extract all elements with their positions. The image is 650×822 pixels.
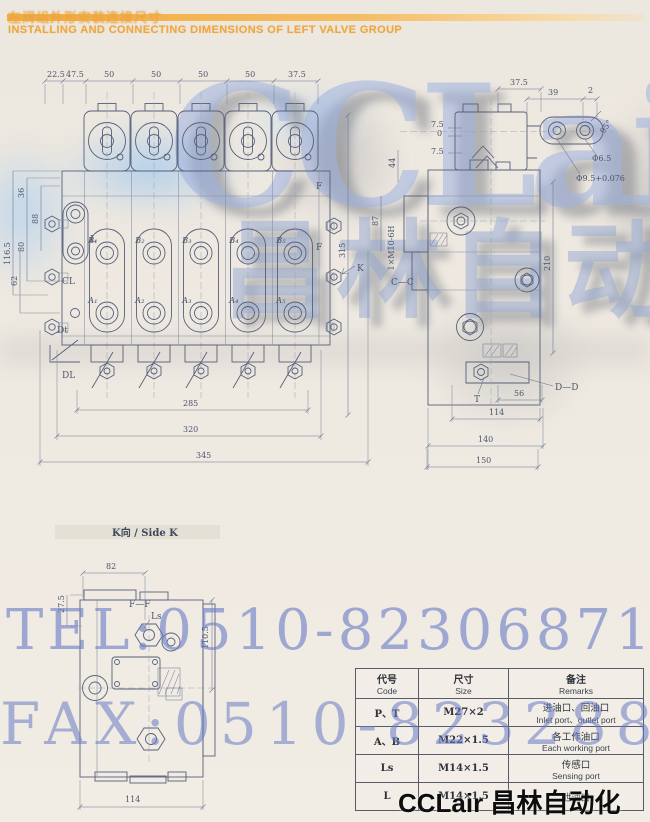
svg-text:88: 88 [31,214,40,224]
port-label: A₅ [275,296,286,306]
svg-text:345: 345 [196,451,211,460]
brand-footer: CCLair 昌林自动化 [398,783,620,820]
svg-text:7.5: 7.5 [431,120,444,129]
side-k-view: K向 / Side K [55,525,220,810]
view-arrow-k: K [357,264,364,274]
port-label: A₄ [228,296,239,306]
svg-text:87: 87 [371,216,380,226]
port-label: B₃ [181,236,192,246]
svg-text:116.5: 116.5 [3,242,12,265]
svg-text:114: 114 [489,408,504,417]
section-view: 95° Φ6.5 Φ9.5+0.076 1×M10-6H C—C D—D T 3… [371,78,625,470]
port-label: A₁ [87,296,98,306]
fax-watermark: FAX:0510-82328871 [0,690,650,758]
svg-text:150: 150 [476,456,491,465]
front-left-dims: 36 88 80 116.5 62 [3,171,60,313]
diameter-label: Φ6.5 [592,154,611,163]
port-label-f: F [316,243,322,253]
front-height-dim: 315 [338,113,351,418]
svg-text:39: 39 [548,88,558,97]
svg-text:114: 114 [125,795,140,804]
port-label: B₄ [228,236,239,246]
section-label-dd: D—D [555,383,578,393]
port-label: B₅ [275,236,286,246]
port-label: A₂ [134,296,145,306]
section-dims: 37.5 39 2 7.5 0 7.5 44 87 210 [371,78,600,470]
port-label-dt: Dt [57,326,68,336]
port-label-dl: DL [62,371,75,381]
svg-text:22.5: 22.5 [47,70,65,79]
thread-label: 1×M10-6H [387,226,396,271]
svg-text:47.5: 47.5 [66,70,84,79]
svg-text:285: 285 [183,399,198,408]
svg-text:44: 44 [388,158,397,168]
hatch [430,233,517,357]
side-k-title: K向 / Side K [112,526,178,539]
cell-size: M14×1.5 [419,755,509,783]
catalog-page: CCLair 昌林自动化 左阀组外形安装连接尺寸 INSTALLING AND … [0,0,650,822]
svg-text:37.5: 37.5 [288,70,306,79]
section-label-cc: C—C [391,278,414,288]
port-label: A₃ [181,296,192,306]
diameter-label: Φ9.5+0.076 [576,174,625,183]
tel-watermark: TEL:0510-82306871 [6,598,650,663]
svg-text:80: 80 [17,242,26,252]
port-label-t: T [474,395,480,405]
cell-code: Ls [356,755,419,783]
front-top-dims: 22.5 47.5 50 50 50 50 37.5 [43,70,321,104]
port-label: B₂ [134,236,145,246]
svg-text:140: 140 [478,435,493,444]
port-label-cl: CL [62,277,75,287]
angle-label: 95° [598,118,614,135]
svg-text:36: 36 [17,188,26,198]
svg-text:37.5: 37.5 [510,78,528,87]
svg-text:50: 50 [245,70,255,79]
svg-text:50: 50 [198,70,208,79]
svg-text:315: 315 [338,243,347,258]
port-label-f: F [316,182,322,192]
svg-text:62: 62 [10,276,19,286]
svg-text:2: 2 [588,86,593,95]
svg-text:56: 56 [514,389,524,398]
svg-text:0: 0 [437,129,442,138]
page-title-en: INSTALLING AND CONNECTING DIMENSIONS OF … [8,24,402,36]
table-row: Ls M14×1.5 传感口 Sensing port [356,755,644,783]
svg-text:82: 82 [106,562,116,571]
cell-remarks: 传感口 Sensing port [509,755,644,783]
svg-text:210: 210 [543,256,552,271]
svg-text:50: 50 [151,70,161,79]
svg-text:7.5: 7.5 [431,147,444,156]
svg-text:50: 50 [104,70,114,79]
svg-text:320: 320 [183,425,198,434]
port-label-l: L [90,235,96,245]
front-view: B₁ B₂ B₃ B₄ B₅ A₁ A₂ A₃ A₄ A₅ L CL Dt DL… [3,70,371,466]
